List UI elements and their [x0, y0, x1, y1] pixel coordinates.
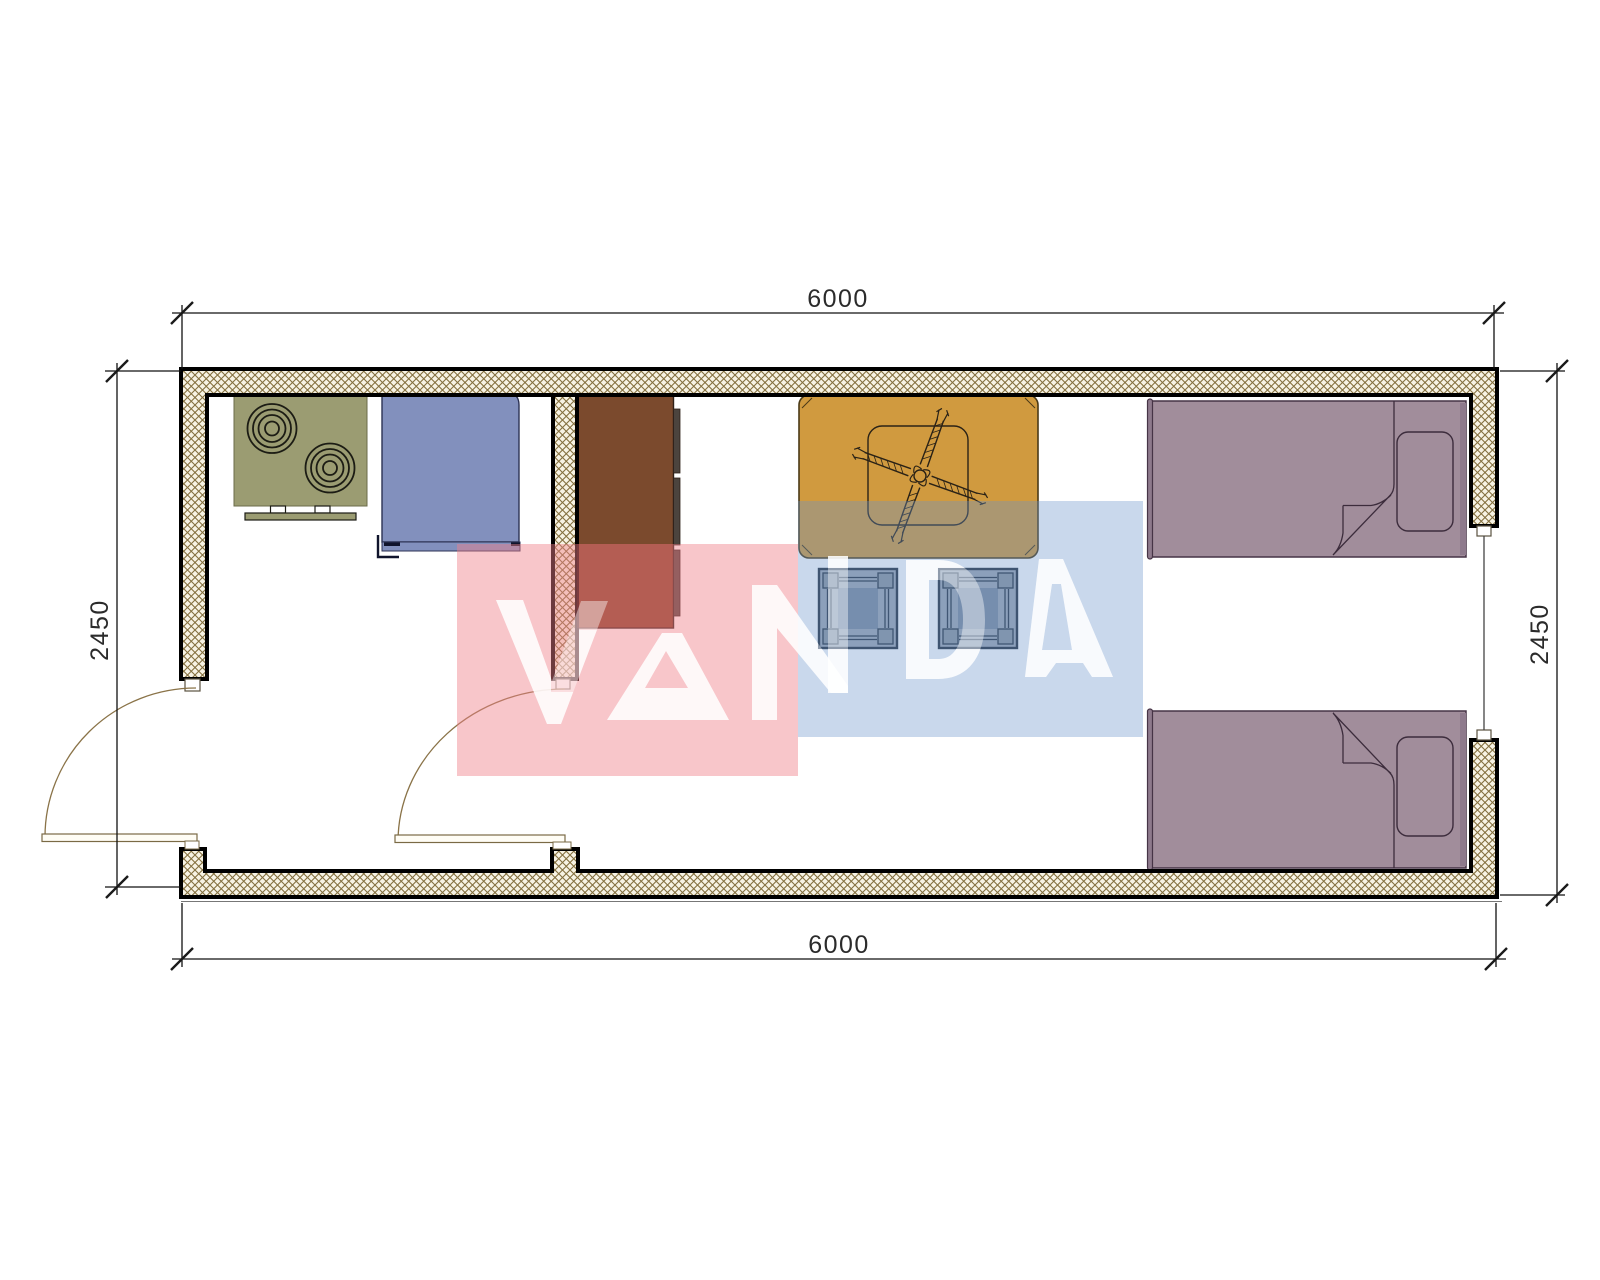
svg-text:2450: 2450 — [86, 599, 114, 661]
svg-text:6000: 6000 — [808, 931, 870, 959]
svg-text:2450: 2450 — [1526, 603, 1554, 665]
svg-text:6000: 6000 — [807, 285, 869, 313]
